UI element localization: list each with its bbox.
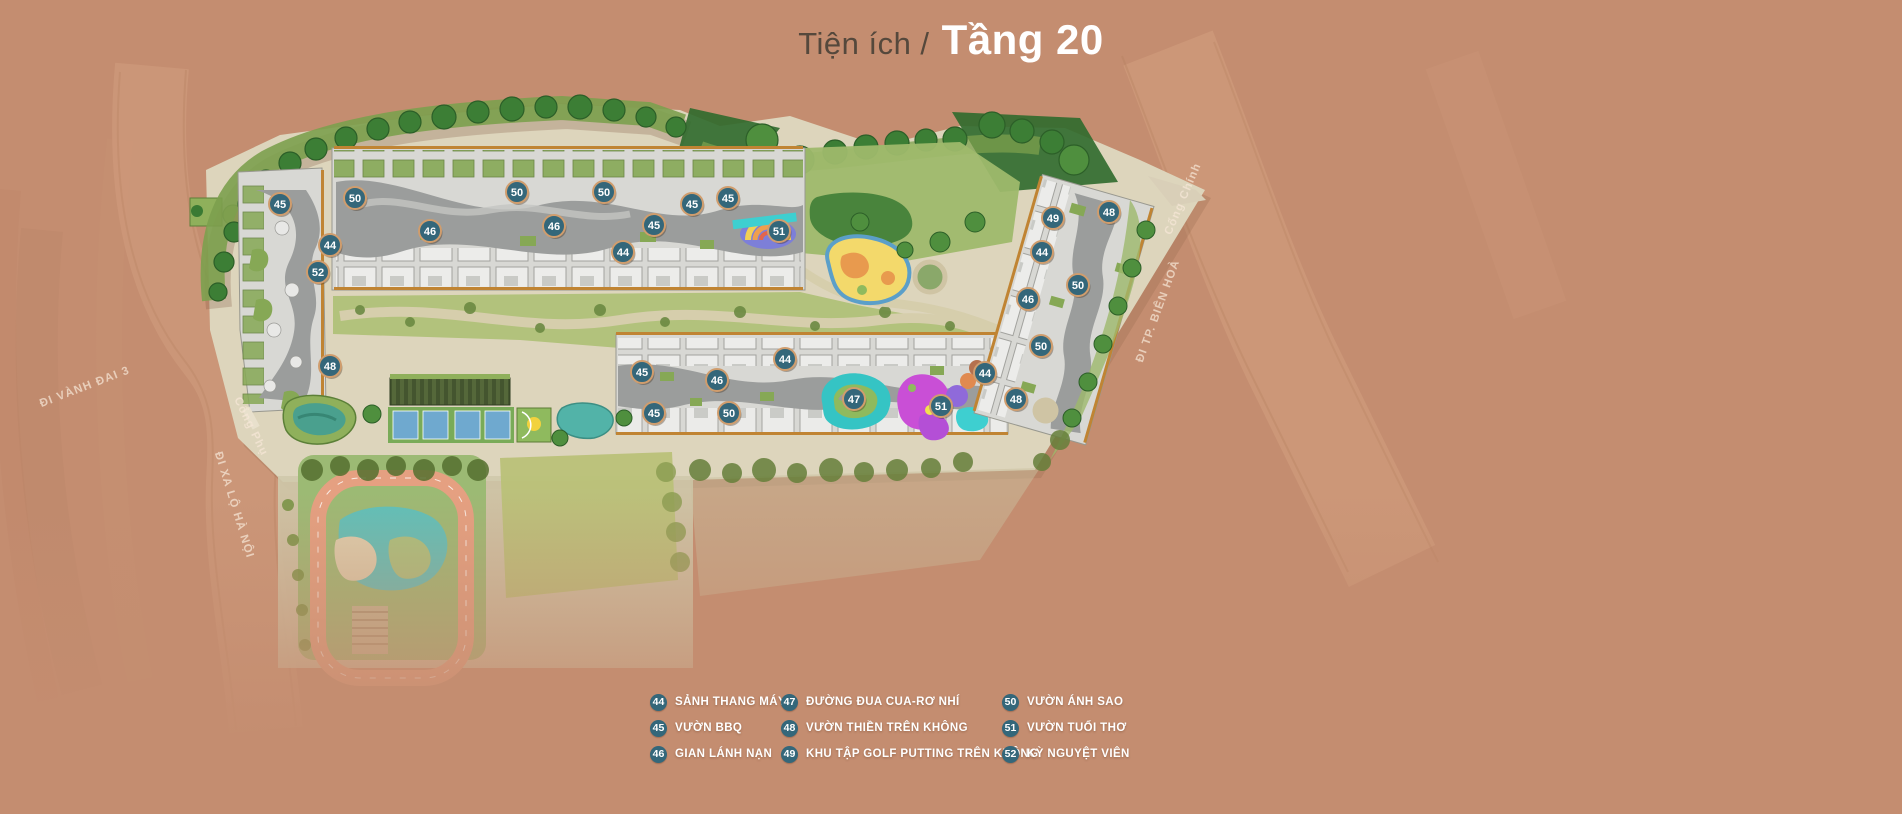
legend-item-46: 46GIAN LÁNH NẠN [650,746,786,762]
svg-text:47: 47 [848,394,860,406]
legend-badge-51: 51 [1002,720,1019,737]
title-floor: Tầng 20 [942,16,1104,64]
legend-label-52: KỲ NGUYỆT VIÊN [1027,748,1130,760]
svg-text:48: 48 [1103,207,1115,219]
legend-item-50: 50VƯỜN ÁNH SAO [1002,694,1130,710]
legend-label-50: VƯỜN ÁNH SAO [1027,696,1123,708]
svg-text:50: 50 [1035,341,1047,353]
floorplan-page: ĐI VÀNH ĐAI 3Cổng PhụĐI XA LỘ HÀ NỘICổng… [0,0,1902,814]
svg-text:45: 45 [686,199,698,211]
svg-text:44: 44 [1036,247,1049,259]
legend-label-51: VƯỜN TUỔI THƠ [1027,722,1127,734]
svg-text:44: 44 [779,354,792,366]
legend-item-48: 48VƯỜN THIỀN TRÊN KHÔNG [781,720,1039,736]
legend-badge-47: 47 [781,694,798,711]
svg-text:45: 45 [636,367,648,379]
svg-text:48: 48 [324,361,336,373]
svg-text:44: 44 [617,247,630,259]
svg-text:52: 52 [312,267,324,279]
svg-text:45: 45 [648,220,660,232]
svg-text:45: 45 [722,193,734,205]
svg-text:50: 50 [598,187,610,199]
legend-column-1: 44SẢNH THANG MÁY45VƯỜN BBQ46GIAN LÁNH NẠ… [650,694,786,772]
legend-column-3: 50VƯỜN ÁNH SAO51VƯỜN TUỔI THƠ52KỲ NGUYỆT… [1002,694,1130,772]
legend-item-49: 49KHU TẬP GOLF PUTTING TRÊN KHÔNG [781,746,1039,762]
building-top-row [332,146,805,290]
title-breadcrumb: Tiện ích / [798,26,929,62]
svg-text:46: 46 [1022,294,1034,306]
legend-item-52: 52KỲ NGUYỆT VIÊN [1002,746,1130,762]
svg-text:49: 49 [1047,213,1059,225]
svg-text:50: 50 [349,193,361,205]
legend-badge-52: 52 [1002,746,1019,763]
legend-item-44: 44SẢNH THANG MÁY [650,694,786,710]
svg-text:44: 44 [979,368,992,380]
svg-text:48: 48 [1010,394,1022,406]
svg-text:46: 46 [424,226,436,238]
svg-text:50: 50 [1072,280,1084,292]
legend-badge-45: 45 [650,720,667,737]
building-lower-row [616,332,1008,440]
legend-badge-50: 50 [1002,694,1019,711]
legend-badge-49: 49 [781,746,798,763]
svg-text:51: 51 [935,401,947,413]
legend-label-47: ĐƯỜNG ĐUA CUA-RƠ NHÍ [806,696,960,708]
svg-text:46: 46 [548,221,560,233]
svg-text:45: 45 [648,408,660,420]
legend-label-45: VƯỜN BBQ [675,722,742,734]
svg-text:44: 44 [324,240,337,252]
legend-label-44: SẢNH THANG MÁY [675,696,786,708]
legend-badge-48: 48 [781,720,798,737]
legend-badge-46: 46 [650,746,667,763]
site-map: ĐI VÀNH ĐAI 3Cổng PhụĐI XA LỘ HÀ NỘICổng… [0,0,1902,814]
svg-text:45: 45 [274,199,286,211]
legend-label-46: GIAN LÁNH NẠN [675,748,772,760]
legend-badge-44: 44 [650,694,667,711]
legend-item-51: 51VƯỜN TUỔI THƠ [1002,720,1130,736]
legend-item-45: 45VƯỜN BBQ [650,720,786,736]
legend-label-48: VƯỜN THIỀN TRÊN KHÔNG [806,722,968,734]
legend-column-2: 47ĐƯỜNG ĐUA CUA-RƠ NHÍ48VƯỜN THIỀN TRÊN … [781,694,1039,772]
svg-text:50: 50 [511,187,523,199]
page-title: Tiện ích / Tầng 20 [0,16,1902,64]
svg-text:51: 51 [773,226,785,238]
legend-item-47: 47ĐƯỜNG ĐUA CUA-RƠ NHÍ [781,694,1039,710]
svg-text:50: 50 [723,408,735,420]
svg-text:46: 46 [711,375,723,387]
